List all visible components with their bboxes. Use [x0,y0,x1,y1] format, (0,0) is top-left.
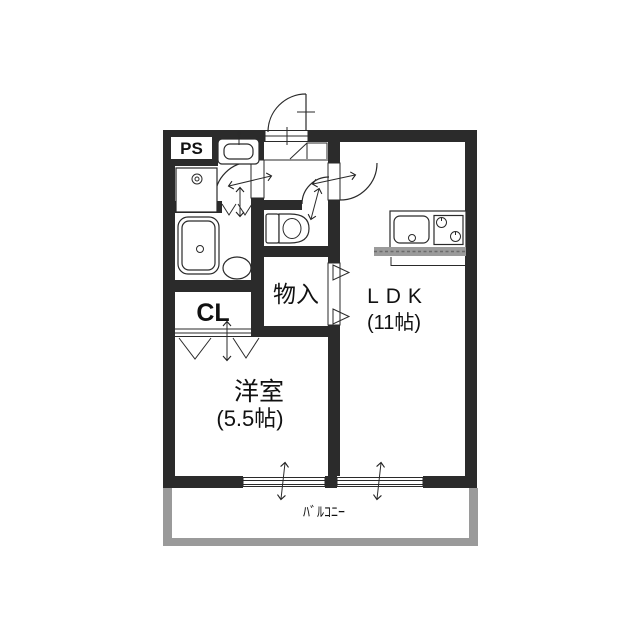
closet-label: CL [196,299,229,327]
western-window [243,478,325,487]
shoe-cabinet [264,143,328,160]
washing-machine-pan [176,168,217,212]
western-room-size-label: (5.5帖) [216,406,283,431]
western-room-label: 洋室 [234,378,284,406]
closet-opening [175,329,251,337]
kitchen-counter [374,211,466,266]
closet-folding-door [179,322,259,360]
balcony-label: ﾊﾞﾙｺﾆｰ [303,504,345,520]
bathtub [178,217,219,274]
ldk-door [313,163,377,200]
storage-door-jamb [328,263,340,325]
counter-front-edge [391,257,466,266]
ldk-size-label: (11帖) [367,311,421,334]
toilet [266,214,309,243]
floor-plan-page: PS CL 物入 LDK (11帖) 洋室 (5.5帖) ﾊﾞﾙｺﾆｰ [0,0,640,640]
ldk-door-jamb [328,163,340,200]
bath-stool [223,257,251,279]
kitchen-sink [394,216,429,243]
floor-plan: PS CL 物入 LDK (11帖) 洋室 (5.5帖) ﾊﾞﾙｺﾆｰ [0,0,640,640]
pipe-space-label: PS [180,139,203,158]
storage-label: 物入 [273,281,319,307]
stove [434,216,463,245]
ldk-label: LDK [367,285,429,308]
bath-folding-door [222,188,252,216]
ldk-window [337,478,423,487]
entrance-door [268,94,315,132]
